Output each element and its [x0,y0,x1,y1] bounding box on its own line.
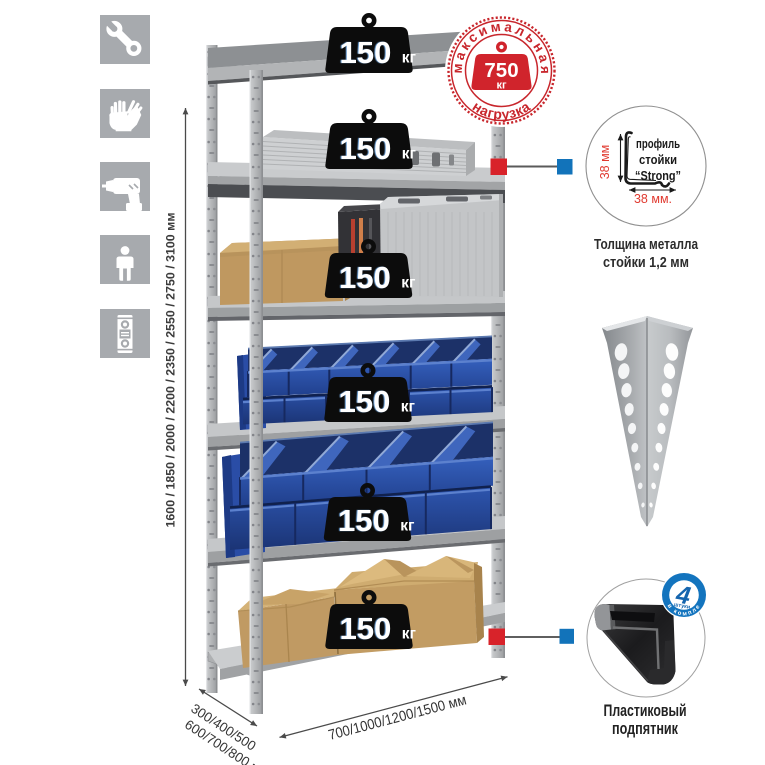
svg-text:150: 150 [339,260,391,295]
svg-text:стойки 1,2 мм: стойки 1,2 мм [603,254,689,271]
svg-text:кг: кг [400,518,415,535]
svg-text:1600 / 1850 / 2000 / 2200 / 23: 1600 / 1850 / 2000 / 2200 / 2350 / 2550 … [164,212,178,527]
svg-text:150: 150 [340,131,392,166]
svg-text:38 мм.: 38 мм. [634,192,672,206]
svg-text:38 мм: 38 мм [598,145,612,180]
svg-text:кг: кг [402,50,417,67]
svg-text:подпятник: подпятник [612,720,679,738]
svg-text:150: 150 [339,384,391,419]
svg-text:кг: кг [496,80,507,92]
svg-text:700/1000/1200/1500 мм: 700/1000/1200/1500 мм [327,692,468,744]
svg-text:кг: кг [402,626,417,643]
svg-text:профиль: профиль [636,137,680,151]
svg-text:150: 150 [340,35,392,70]
svg-text:150: 150 [340,611,392,646]
svg-text:стойки: стойки [639,153,677,167]
svg-text:кг: кг [401,399,416,416]
svg-text:кг: кг [401,275,416,292]
svg-text:кг: кг [402,146,417,163]
svg-text:Пластиковый: Пластиковый [604,702,687,720]
svg-text:150: 150 [338,503,390,538]
svg-text:Толщина металла: Толщина металла [594,236,699,253]
svg-text:“Strong”: “Strong” [635,169,681,183]
